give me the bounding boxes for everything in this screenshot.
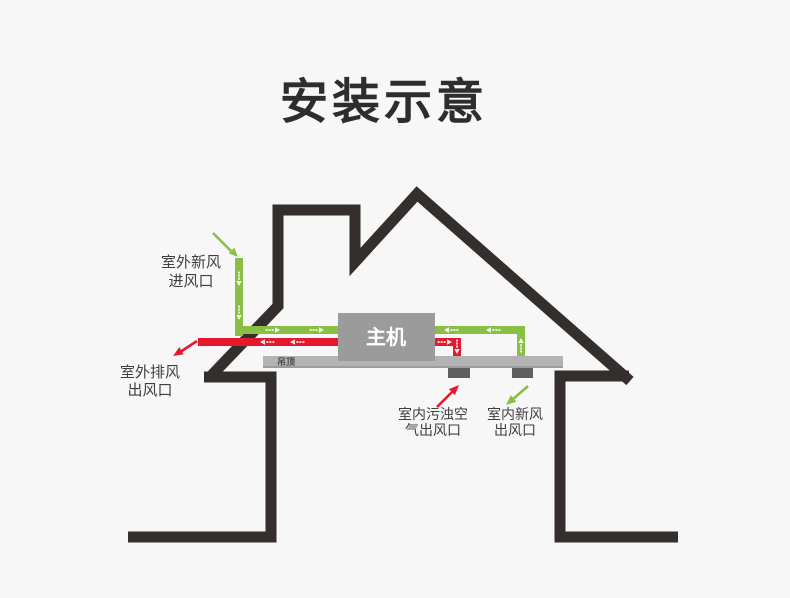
ceiling-bar-shadow xyxy=(263,366,563,368)
indoor-fresh-air-vent xyxy=(512,368,533,378)
outdoor-exhaust-label-line1: 室外排风 xyxy=(120,364,180,381)
fresh-air-duct-inlet-vertical xyxy=(235,258,243,336)
indoor-dirty-air-label-line1: 室内污浊空 xyxy=(398,406,468,422)
installation-diagram-page: 安装示意 吊顶 主机 xyxy=(0,0,790,598)
ceiling-label: 吊顶 xyxy=(277,357,295,367)
indoor-dirty-air-label-line2: 气出风口 xyxy=(405,422,461,438)
main-unit: 主机 xyxy=(338,313,435,361)
indoor-fresh-air-label-line2: 出风口 xyxy=(494,422,536,438)
indoor-fresh-air-arrow xyxy=(506,386,528,405)
left-eave-wall-floor-line xyxy=(128,377,271,537)
page-title: 安装示意 xyxy=(280,76,488,129)
outdoor-exhaust-label-line2: 出风口 xyxy=(127,382,172,399)
diagram-canvas: 安装示意 吊顶 主机 xyxy=(0,0,790,598)
indoor-dirty-air-arrow xyxy=(437,385,459,407)
outdoor-fresh-air-label: 室外新风 进风口 xyxy=(161,254,221,290)
outdoor-exhaust-label: 室外排风 出风口 xyxy=(120,364,180,399)
indoor-fresh-air-label: 室内新风 出风口 xyxy=(487,406,543,438)
main-unit-label: 主机 xyxy=(366,325,406,349)
right-eave-wall-floor-line xyxy=(560,376,678,537)
indoor-dirty-air-label: 室内污浊空 气出风口 xyxy=(398,406,468,438)
indoor-dirty-air-vent xyxy=(448,368,470,378)
outdoor-exhaust-arrow xyxy=(173,341,197,356)
ceiling-vents xyxy=(448,368,533,378)
indoor-fresh-air-label-line1: 室内新风 xyxy=(487,406,543,422)
outdoor-fresh-air-label-line1: 室外新风 xyxy=(161,254,221,271)
outdoor-fresh-air-label-line2: 进风口 xyxy=(168,273,213,290)
